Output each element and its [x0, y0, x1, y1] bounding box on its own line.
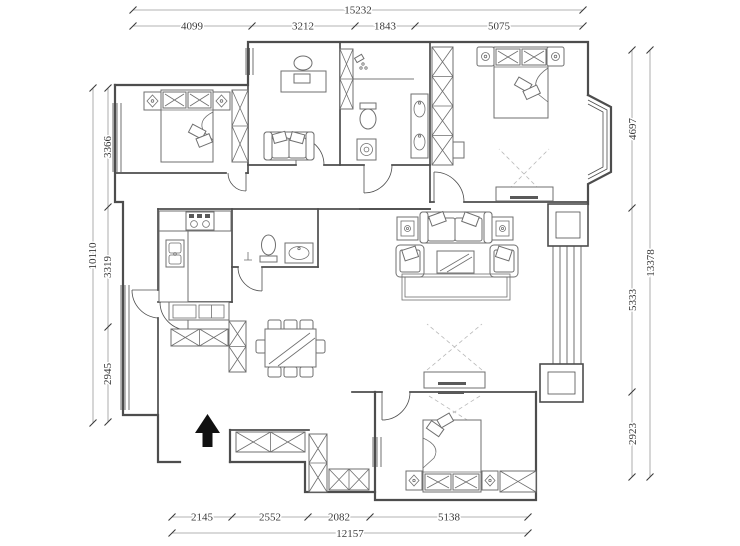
door-balcony-kitchen: [132, 290, 158, 318]
floor-plan-drawing: 15232 4099 3212 1843 5075 10110 3366 331…: [0, 0, 740, 546]
living-armchair-left: [396, 245, 424, 277]
study-sofa: [264, 131, 314, 160]
toilet: [360, 103, 376, 129]
bedroom1-bed: [161, 90, 213, 162]
living-rug: [402, 274, 510, 300]
bedroom1-nightstand-left: [144, 92, 161, 110]
master-nightstand-left: [477, 47, 494, 66]
kitchen-sink: [166, 240, 184, 267]
dim-bottom-seg1: 2145: [191, 512, 214, 524]
hall-cabinet-vertical: [309, 434, 327, 492]
bay-window-glazing: [588, 100, 607, 179]
living-armchair-right: [490, 245, 518, 277]
bedroom3-wardrobe: [500, 471, 536, 492]
bedroom1-wardrobe: [232, 90, 248, 162]
dim-bottom-total: 12157: [336, 528, 364, 540]
kitchen-bar-counter: [169, 302, 229, 320]
bedroom3-bed: [423, 413, 481, 492]
east-columns-and-window-wall: [540, 204, 588, 402]
door-master-bedroom: [434, 172, 464, 202]
dim-left-total: 10110: [87, 242, 99, 270]
dim-bottom-seg2: 2552: [259, 512, 281, 524]
dim-right-seg2: 5333: [627, 289, 639, 312]
hall-cabinet-2: [329, 469, 369, 490]
bathroom2-faucet: [244, 252, 252, 260]
dim-left-seg1: 3366: [102, 136, 114, 159]
bedroom3-nightstand-right: [482, 471, 498, 490]
door-bedroom3: [382, 392, 410, 420]
door-bedroom1: [228, 173, 246, 191]
dim-bottom-seg4: 5138: [438, 512, 461, 524]
bedroom3-nightstand-left: [406, 471, 422, 490]
dining-table-set: [256, 320, 325, 377]
dim-left-seg3: 2945: [102, 363, 114, 386]
dim-right-seg1: 4697: [627, 118, 639, 141]
dimension-right: 4697 5333 2923 13378: [627, 47, 657, 481]
sideboard: [171, 329, 228, 346]
door-bathroom2: [238, 267, 262, 291]
tall-cabinet-dining: [229, 321, 246, 372]
living-coffee-table: [437, 251, 474, 273]
master-wardrobe: [432, 47, 464, 165]
living-side-table-left: [397, 217, 418, 240]
door-bathroom: [364, 165, 392, 193]
basin-2: [285, 243, 313, 263]
dimension-bottom: 2145 2552 2082 5138 12157: [169, 512, 532, 541]
living-sofa: [420, 212, 492, 243]
dim-top-seg4: 5075: [488, 21, 511, 33]
master-nightstand-right: [547, 47, 564, 66]
vanity-double-sink: [411, 94, 428, 158]
dim-top-seg1: 4099: [181, 21, 204, 33]
living-tv-cabinet: [424, 324, 485, 388]
dim-right-seg3: 2923: [627, 423, 639, 446]
toilet-2: [260, 235, 277, 262]
shoe-cabinet-1: [236, 432, 305, 452]
dim-left-seg2: 3319: [102, 256, 114, 279]
entrance-arrow: [195, 414, 220, 447]
master-bed: [494, 47, 548, 118]
dimension-top: 15232 4099 3212 1843 5075: [130, 5, 587, 33]
dimension-left: 10110 3366 3319 2945: [87, 85, 114, 427]
bathroom-cabinet: [340, 49, 353, 109]
dim-top-seg2: 3212: [292, 21, 314, 33]
shower-area: [353, 54, 414, 79]
kitchen-stove: [186, 212, 214, 230]
dim-top-total: 15232: [344, 5, 372, 17]
master-tv-cabinet: [496, 149, 553, 201]
dim-top-seg3: 1843: [374, 21, 397, 33]
floor-plan-canvas: 15232 4099 3212 1843 5075 10110 3366 331…: [0, 0, 740, 546]
dim-right-total: 13378: [645, 249, 657, 277]
dim-bottom-seg3: 2082: [328, 512, 350, 524]
study-desk-chair: [281, 56, 326, 92]
living-side-table-right: [492, 217, 513, 240]
bedroom1-nightstand-right: [213, 92, 230, 110]
washing-machine: [357, 139, 376, 160]
